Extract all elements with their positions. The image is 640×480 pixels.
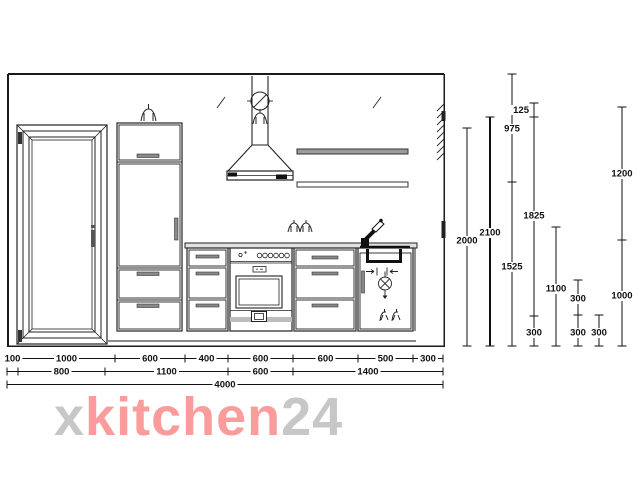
hob-control-knobs — [257, 253, 289, 258]
hood-filter-mark — [228, 173, 237, 177]
dim-label: 400 — [199, 354, 215, 365]
entry-door — [17, 125, 107, 344]
dimension-labels-right: 2000 2100 975 1525 125 1825 300 1100 300… — [455, 105, 635, 339]
drawer-handle — [196, 255, 219, 258]
oven-display — [253, 267, 266, 273]
drawer-handle — [312, 304, 338, 307]
dim-label: 300 — [570, 294, 586, 305]
door-handle — [91, 225, 95, 247]
sink — [360, 247, 410, 262]
dim-label: 1525 — [501, 262, 523, 273]
drawer-handle — [312, 272, 338, 275]
dim-label: 600 — [318, 354, 334, 365]
oven-handle — [252, 312, 267, 322]
dim-label: 1400 — [357, 367, 378, 378]
dim-label: 125 — [513, 105, 530, 116]
watermark-24: 24 — [281, 387, 343, 447]
dim-label: 300 — [570, 328, 586, 339]
watermark-logo: xkitchen24 — [54, 390, 343, 444]
dim-label: 1100 — [546, 284, 567, 295]
dim-label: 100 — [5, 354, 21, 365]
tall-cabinet — [117, 104, 182, 331]
ignition-mark — [239, 253, 242, 256]
dim-label: 500 — [378, 354, 394, 365]
base-cabinet-400 — [187, 248, 228, 331]
kitchen-elevation-page: 100 1000 600 400 600 600 500 300 800 110… — [0, 0, 640, 480]
wall-shelf-upper — [297, 149, 408, 154]
dim-label: 1000 — [56, 354, 77, 365]
dim-label: 300 — [420, 354, 436, 365]
wall-shelf-lower — [297, 182, 408, 187]
watermark-kitchen: kitchen — [85, 387, 281, 447]
drawer-handle — [196, 272, 219, 275]
dim-label: 300 — [526, 328, 542, 339]
drawer-handle — [137, 304, 159, 308]
wall-shelves — [297, 149, 408, 187]
drawer-handle — [312, 256, 338, 259]
dim-label: 1825 — [523, 211, 545, 222]
dim-label: 600 — [253, 367, 269, 378]
oven-cabinet — [230, 248, 292, 331]
hood-control-mark — [276, 175, 287, 180]
cooker-hood — [227, 76, 293, 180]
cabinet-handle — [362, 271, 365, 293]
wall-socket-mark — [442, 111, 446, 121]
watermark-x: x — [54, 387, 85, 447]
cabinet-handle — [175, 218, 179, 240]
wall-socket-mark — [442, 221, 446, 238]
dim-label: 975 — [504, 124, 521, 135]
dim-label: 2000 — [456, 236, 477, 247]
worktop-socket-symbols — [288, 220, 312, 232]
drawer-handle — [196, 304, 219, 307]
drawer-cabinet-600 — [294, 248, 356, 331]
drawer-handle — [137, 272, 159, 276]
dim-label: 1200 — [611, 169, 632, 180]
dim-label: 2100 — [479, 228, 500, 239]
dim-label: 800 — [54, 367, 70, 378]
oven-window — [236, 276, 282, 308]
dim-label: 1000 — [611, 291, 632, 302]
cabinet-handle — [137, 154, 159, 158]
dim-label: 600 — [142, 354, 158, 365]
socket-symbol-icon — [141, 104, 156, 121]
dim-label: 600 — [253, 354, 269, 365]
dim-label: 1100 — [156, 367, 177, 378]
door-hinge-top — [18, 132, 22, 144]
socket-symbol-icon — [253, 109, 267, 124]
drain-symbol — [380, 309, 400, 321]
water-connection-symbol — [366, 268, 398, 300]
dim-label: 300 — [591, 328, 607, 339]
door-hinge-bottom — [18, 330, 22, 342]
